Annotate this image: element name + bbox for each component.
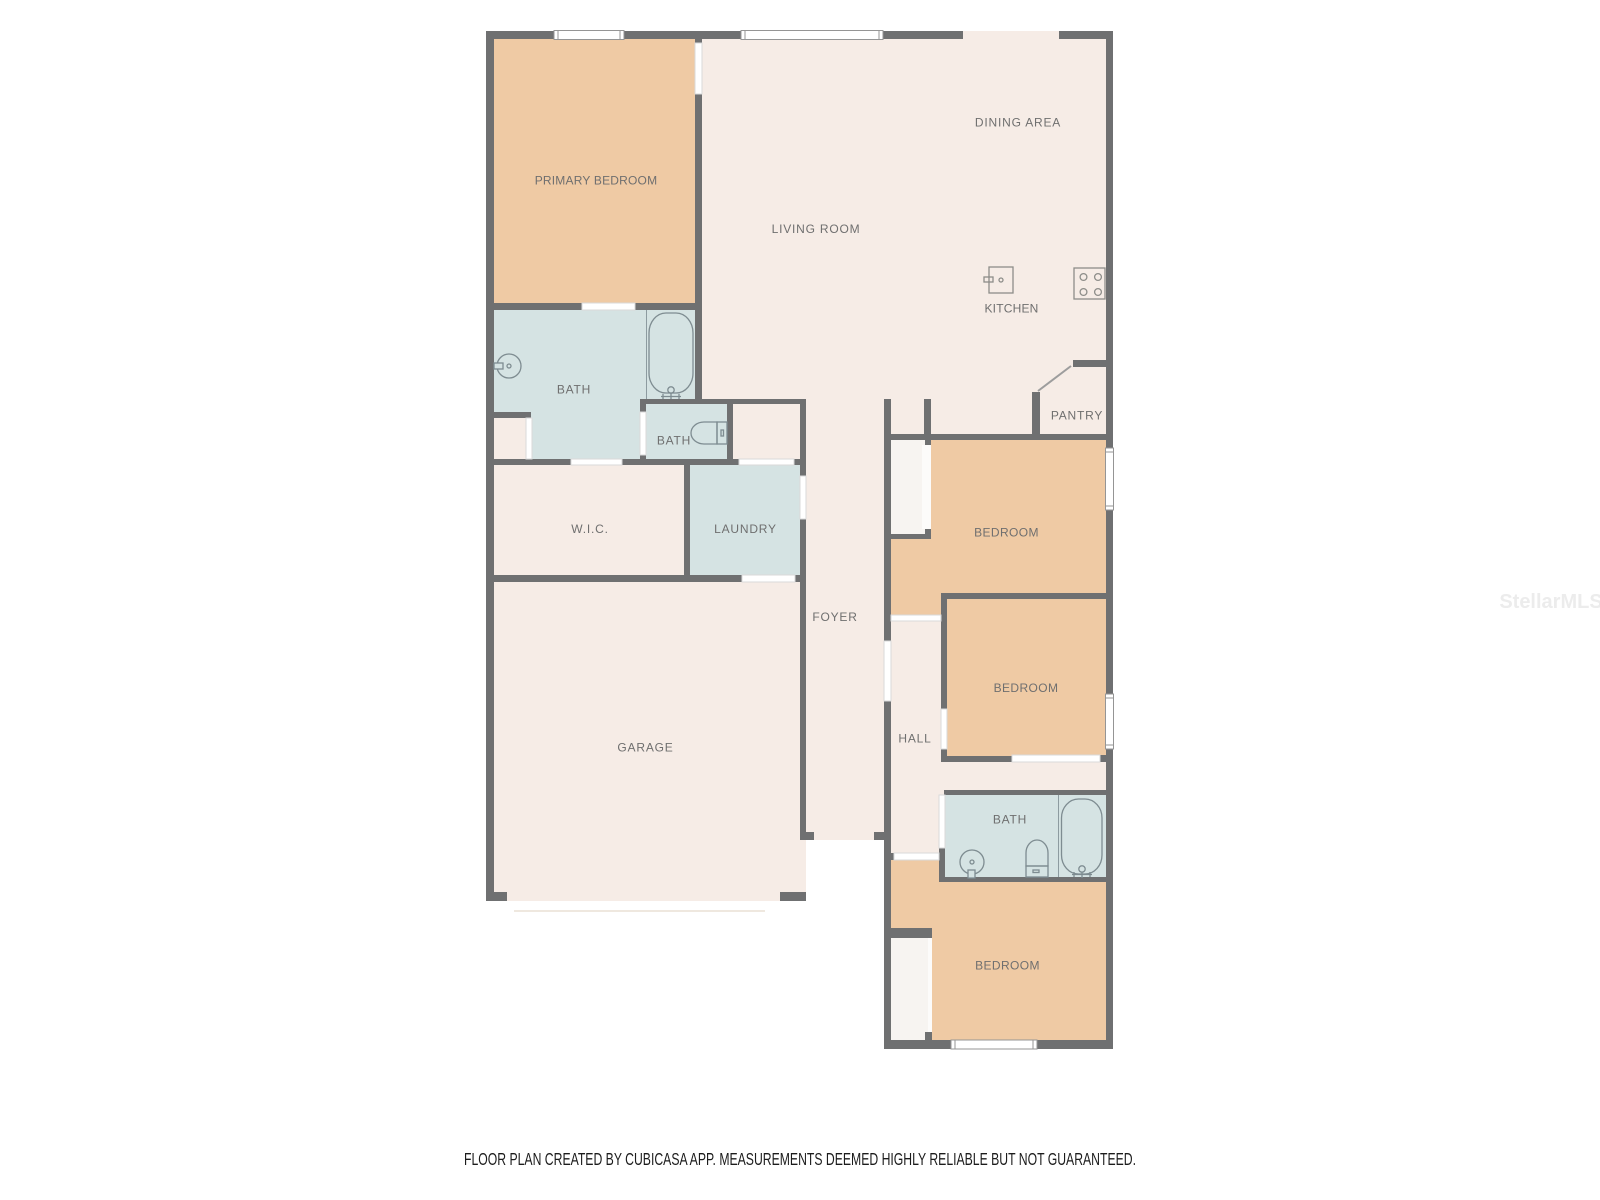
svg-text:StellarMLS: StellarMLS [1499,591,1600,613]
svg-text:BATH: BATH [557,383,591,397]
svg-text:PANTRY: PANTRY [1051,409,1103,423]
svg-text:BEDROOM: BEDROOM [994,681,1059,695]
svg-text:LIVING ROOM: LIVING ROOM [772,222,861,236]
svg-text:FLOOR PLAN CREATED BY CUBICASA: FLOOR PLAN CREATED BY CUBICASA APP. MEAS… [464,1149,1136,1169]
svg-text:LAUNDRY: LAUNDRY [714,522,777,536]
svg-text:BEDROOM: BEDROOM [974,526,1039,540]
svg-text:BATH: BATH [657,434,691,448]
svg-text:DINING AREA: DINING AREA [975,116,1061,130]
svg-text:BATH: BATH [993,813,1027,827]
svg-text:PRIMARY BEDROOM: PRIMARY BEDROOM [535,174,658,188]
svg-text:KITCHEN: KITCHEN [984,302,1038,316]
svg-text:BEDROOM: BEDROOM [975,959,1040,973]
svg-text:W.I.C.: W.I.C. [571,522,608,536]
svg-text:HALL: HALL [898,732,931,746]
svg-text:FOYER: FOYER [812,610,857,624]
svg-text:GARAGE: GARAGE [617,741,673,755]
